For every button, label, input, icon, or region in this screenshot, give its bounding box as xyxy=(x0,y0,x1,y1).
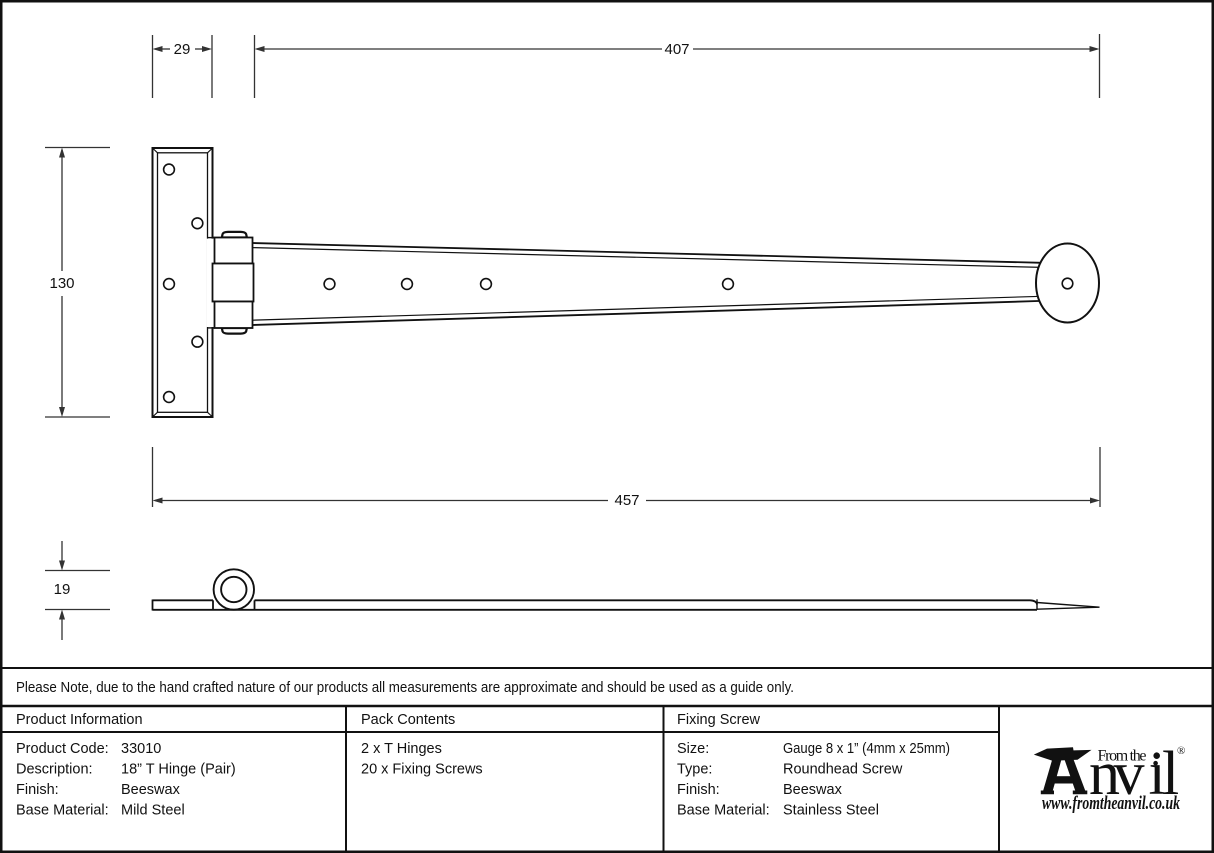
svg-text:20 x Fixing Screws: 20 x Fixing Screws xyxy=(361,762,483,778)
svg-text:407: 407 xyxy=(664,41,689,58)
svg-text:Roundhead Screw: Roundhead Screw xyxy=(783,762,903,778)
svg-text:33010: 33010 xyxy=(121,741,161,757)
svg-text:Product Code:: Product Code: xyxy=(16,741,109,757)
svg-text:Stainless Steel: Stainless Steel xyxy=(783,803,879,819)
svg-text:Finish:: Finish: xyxy=(677,782,720,798)
svg-text:2 x T Hinges: 2 x T Hinges xyxy=(361,741,442,757)
svg-text:Product Information: Product Information xyxy=(16,712,143,728)
svg-text:Base Material:: Base Material: xyxy=(677,803,770,819)
svg-text:Pack Contents: Pack Contents xyxy=(361,712,455,728)
svg-text:457: 457 xyxy=(614,492,639,509)
svg-text:Gauge 8 x 1” (4mm x 25mm): Gauge 8 x 1” (4mm x 25mm) xyxy=(783,741,950,757)
svg-text:Base Material:: Base Material: xyxy=(16,803,109,819)
svg-text:Finish:: Finish: xyxy=(16,782,59,798)
svg-text:130: 130 xyxy=(49,275,74,292)
svg-text:®: ® xyxy=(1177,745,1185,757)
svg-text:Fixing Screw: Fixing Screw xyxy=(677,712,761,728)
svg-text:Size:: Size: xyxy=(677,741,709,757)
svg-text:Mild Steel: Mild Steel xyxy=(121,803,185,819)
svg-text:Type:: Type: xyxy=(677,762,712,778)
svg-text:18” T Hinge (Pair): 18” T Hinge (Pair) xyxy=(121,762,236,778)
svg-text:Beeswax: Beeswax xyxy=(121,782,181,798)
svg-text:Description:: Description: xyxy=(16,762,93,778)
svg-text:www.fromtheanvil.co.uk: www.fromtheanvil.co.uk xyxy=(1042,794,1181,814)
svg-text:29: 29 xyxy=(174,41,191,58)
svg-text:19: 19 xyxy=(54,581,71,598)
svg-text:Please Note, due to the hand c: Please Note, due to the hand crafted nat… xyxy=(16,680,794,696)
svg-text:Beeswax: Beeswax xyxy=(783,782,843,798)
